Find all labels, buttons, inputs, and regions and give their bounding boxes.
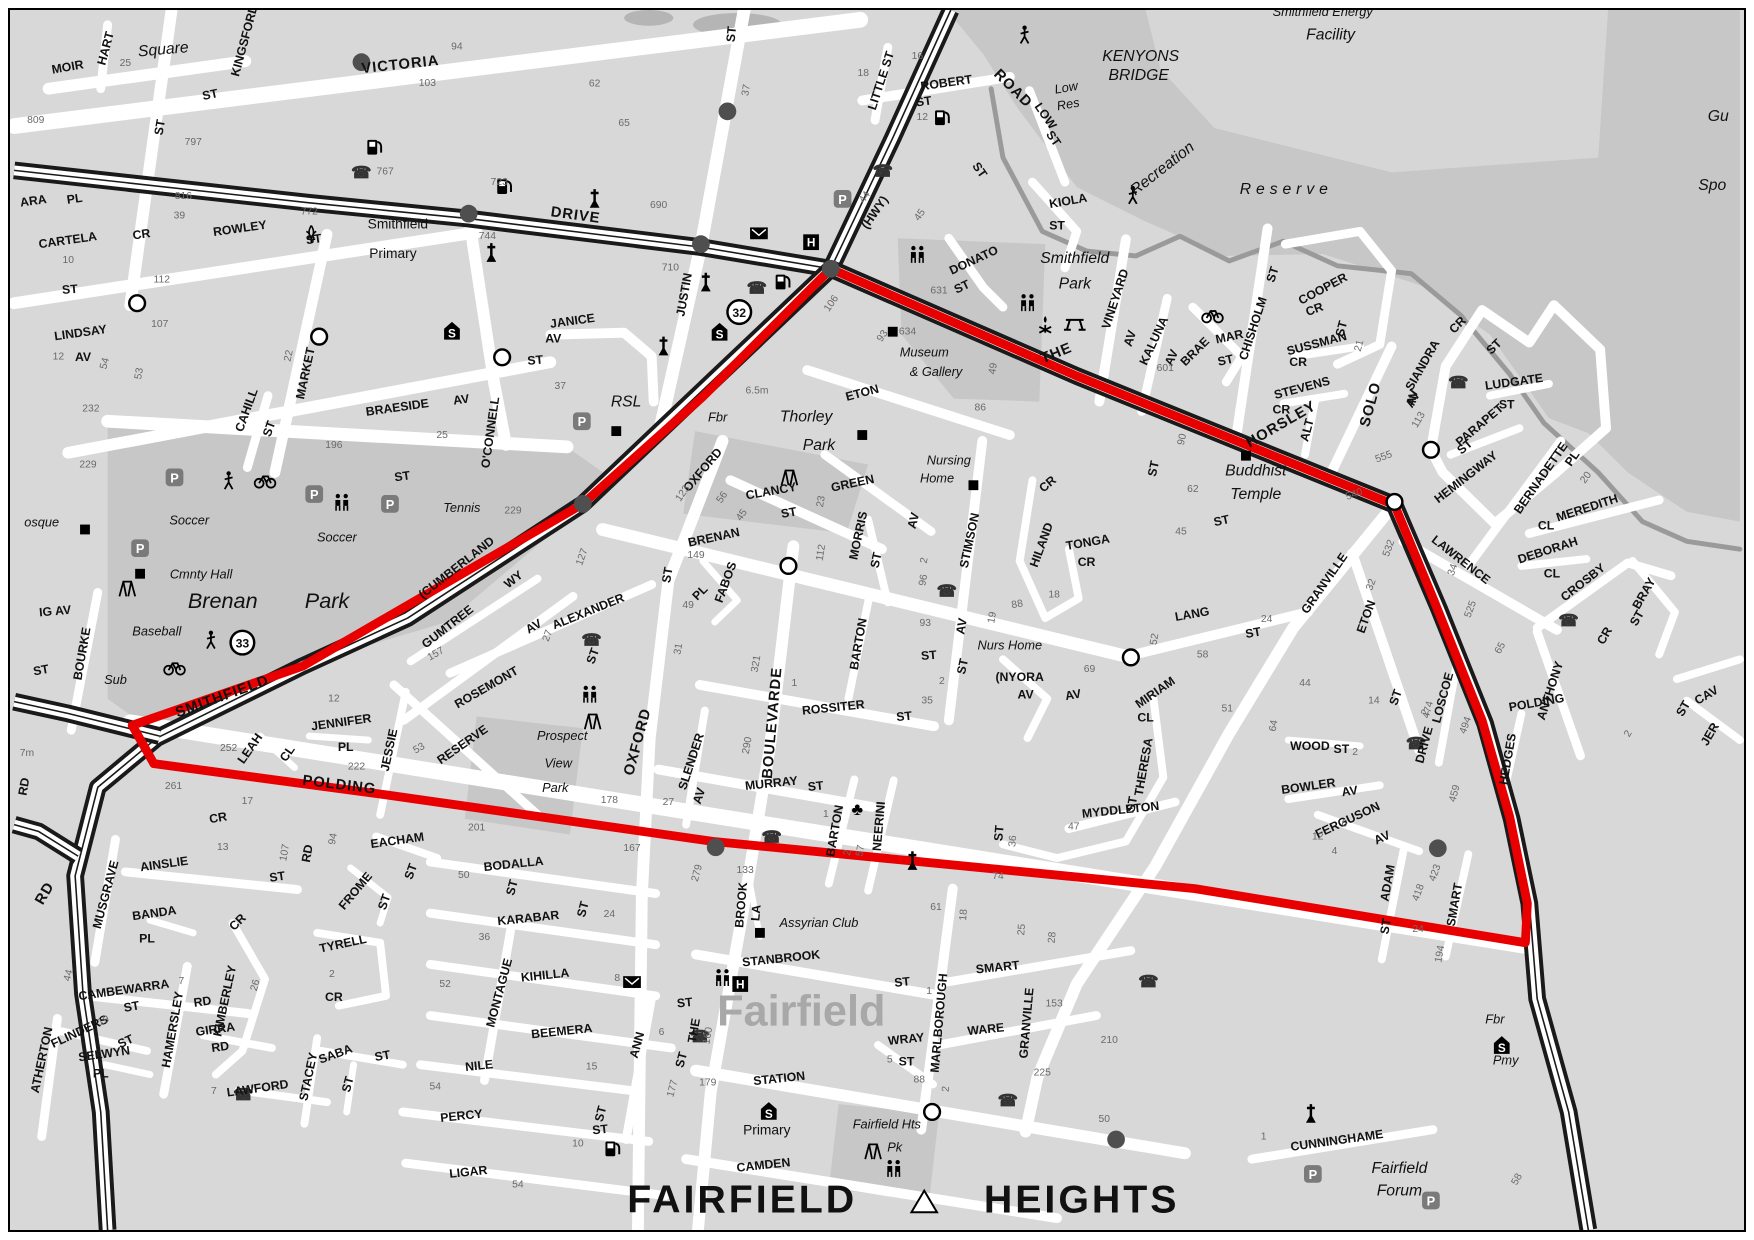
map-label: 53 [133, 367, 146, 380]
map-label: Nursing [927, 453, 971, 468]
map-label: 37 [740, 83, 753, 96]
map-label: CR [1289, 355, 1307, 369]
map-label: 93 [919, 618, 931, 629]
map-label: 49 [987, 362, 1000, 375]
map-label: ST [269, 869, 287, 885]
map-label: (NYORA [995, 670, 1044, 684]
map-label: 23 [815, 495, 828, 508]
map-label: ST [807, 778, 825, 794]
svg-text:P: P [1427, 1193, 1436, 1208]
map-label: ST [32, 662, 50, 679]
svg-text:P: P [310, 487, 319, 502]
map-label: 179 [699, 1077, 716, 1088]
map-label: Baseball [132, 624, 182, 639]
svg-text:P: P [578, 414, 587, 429]
roundabout [311, 329, 327, 345]
map-label: 54 [512, 1180, 524, 1191]
map-label: FAIRFIELD [627, 1177, 857, 1221]
sq-icon [755, 928, 765, 938]
map-label: 2 [329, 969, 335, 980]
hospital-icon: H [803, 234, 819, 250]
map-label: 167 [623, 843, 640, 854]
map-label: CL [1544, 567, 1561, 581]
parking-icon: P [834, 190, 852, 208]
map-label: 24 [1412, 924, 1424, 935]
map-label: ST [991, 824, 1006, 841]
phone-icon: ☎ [581, 631, 602, 650]
map-label: PL [66, 191, 84, 207]
map-label: ST [915, 93, 933, 109]
sq-icon [80, 525, 90, 535]
map-label: 47 [1068, 822, 1080, 833]
map-label: 65 [618, 118, 630, 129]
map-label: ST [305, 231, 323, 247]
map-label: ST [393, 468, 411, 484]
map-label: IG AV [39, 603, 73, 620]
map-label: CL [1137, 710, 1154, 724]
map-label: 229 [504, 506, 521, 517]
map-label: 44 [1299, 678, 1311, 689]
map-label: View [544, 756, 572, 771]
traffic-dot [822, 260, 840, 278]
map-label: 28 [1047, 931, 1059, 944]
map-label: 35 [921, 696, 933, 707]
roundabout [1387, 494, 1403, 510]
map-label: 52 [439, 979, 451, 990]
map-label: 225 [1034, 1068, 1051, 1079]
map-label: ST [527, 353, 544, 368]
map-label: 1 [1261, 1131, 1267, 1142]
map-label: 54 [429, 1081, 441, 1092]
svg-text:S: S [765, 1107, 773, 1121]
roundabout [924, 1104, 940, 1120]
map-label: 15 [586, 1062, 598, 1073]
svg-text:♣: ♣ [852, 799, 864, 819]
map-label: 96 [917, 573, 930, 586]
map-label: 744 [479, 231, 496, 242]
map-label: Spo [1698, 177, 1726, 194]
map-label: 797 [185, 137, 202, 148]
map-label: Park [305, 588, 351, 613]
map-label: Fairfield [1371, 1160, 1428, 1177]
traffic-dot [719, 102, 737, 120]
map-label: ST [1049, 218, 1065, 232]
map-label: Assyrian Club [779, 915, 859, 930]
parking-icon: P [573, 412, 591, 430]
map-label: 50 [458, 870, 470, 881]
map-label: 6 [659, 1027, 665, 1038]
traffic-dot [1429, 839, 1447, 857]
map-label: 69 [1084, 664, 1096, 675]
map-label: WOOD [1290, 739, 1330, 753]
svg-text:P: P [136, 541, 145, 556]
map-label: 133 [737, 865, 754, 876]
map-label: 25 [436, 430, 448, 441]
phone-icon: ☎ [761, 827, 782, 846]
map-label: 107 [151, 319, 168, 330]
map-label: 36 [1007, 835, 1019, 848]
map-label: Park [803, 437, 836, 454]
map-label: 7 [179, 976, 185, 987]
map-label: ST [724, 25, 739, 42]
map-label: 24 [1261, 614, 1273, 625]
map-canvas[interactable]: 3233☎☎☎☎☎☎☎☎☎☎☎☎☎PPPPPPPPHHSSSS♣MOIRSTHA… [10, 10, 1744, 1230]
map-label: 149 [687, 550, 704, 561]
map-label: Fbr [708, 409, 728, 424]
sq-icon [135, 569, 145, 579]
map-label: CR [132, 226, 152, 242]
svg-text:☎: ☎ [747, 278, 768, 297]
map-label: Fairfield [717, 987, 885, 1035]
map-label: Soccer [169, 513, 210, 528]
map-label: 25 [1016, 923, 1028, 936]
map-label: ST [896, 709, 914, 725]
map-label: ST [894, 974, 912, 990]
map-label: 4 [1332, 846, 1338, 857]
map-label: Park [542, 780, 569, 795]
map-label: 12 [328, 694, 340, 705]
clubs-icon: ♣ [852, 799, 864, 819]
map-label: Smithfield Energy [1273, 10, 1375, 19]
map-label: 12 [53, 351, 65, 362]
map-label: 222 [348, 762, 365, 773]
map-label: 8 [614, 973, 620, 984]
map-label: 58 [1197, 649, 1209, 660]
traffic-dot [692, 235, 710, 253]
map-label: 723 [491, 177, 508, 188]
parking-icon: P [1422, 1192, 1440, 1210]
phone-icon: ☎ [351, 163, 372, 182]
map-label: Smithfield [1040, 250, 1110, 267]
map-label: RSL [611, 394, 642, 411]
map-label: ST [61, 282, 78, 297]
map-label: 10 [572, 1138, 584, 1149]
map-label: 12 [1312, 831, 1324, 842]
map-label: 210 [1101, 1035, 1118, 1046]
map-label: Forum [1377, 1183, 1422, 1200]
map-label: LA [748, 904, 763, 922]
map-label: RD [193, 994, 213, 1010]
map-label: 232 [82, 403, 99, 414]
map-label: 13 [217, 842, 229, 853]
map-label: Nurs Home [978, 638, 1043, 653]
map-label: PL [338, 740, 354, 754]
map-label: 10 [63, 255, 75, 266]
map-label: 62 [1187, 484, 1199, 495]
map-label: AV [75, 350, 92, 364]
map-label: ST [123, 998, 141, 1015]
map-label: 14 [1368, 696, 1380, 707]
map-label: 39 [174, 211, 186, 222]
sq-icon [611, 426, 621, 436]
map-label: 51 [1222, 704, 1234, 715]
map-label: HEIGHTS [984, 1177, 1180, 1221]
roundabout [129, 295, 145, 311]
map-label: 601 [1157, 363, 1174, 374]
map-label: Buddhist [1225, 462, 1287, 479]
map-label: 88 [914, 1074, 926, 1085]
pond [624, 10, 673, 26]
map-label: 7 [211, 1086, 217, 1097]
svg-text:☎: ☎ [1558, 611, 1579, 630]
map-label: BRIDGE [1109, 67, 1170, 84]
map-label: Facility [1306, 27, 1356, 44]
map-label: & Gallery [910, 364, 964, 379]
map-label: osque [24, 515, 59, 530]
map-label: 94 [451, 41, 463, 52]
map-label: ST [592, 1122, 610, 1138]
phone-icon: ☎ [747, 278, 768, 297]
map-label: Park [1059, 275, 1092, 292]
roundabout [494, 349, 510, 365]
map-label: Thorley [780, 408, 834, 425]
route-shield-label: 33 [236, 637, 250, 651]
svg-text:☎: ☎ [936, 581, 957, 600]
map-label: 1 [926, 986, 932, 997]
map-label: 6 [1341, 819, 1347, 830]
map-label: 153 [1045, 999, 1062, 1010]
phone-icon: ☎ [936, 581, 957, 600]
svg-text:S: S [448, 327, 456, 341]
svg-text:☎: ☎ [872, 161, 893, 180]
street-directory-page: 3233☎☎☎☎☎☎☎☎☎☎☎☎☎PPPPPPPPHHSSSS♣MOIRSTHA… [0, 0, 1754, 1240]
map-label: 178 [601, 795, 618, 806]
map-label: 767 [376, 166, 393, 177]
map-label: 16 [912, 51, 924, 62]
map-label: 31 [672, 642, 685, 655]
map-label: Reserve [1240, 181, 1333, 198]
map-label: Soccer [317, 529, 358, 544]
map-label: ST [1334, 742, 1350, 756]
map-label: 18 [857, 68, 869, 79]
sq-icon [857, 430, 867, 440]
map-label: Cmnty Hall [170, 567, 234, 582]
map-label: Pmy [1493, 1053, 1520, 1068]
svg-text:H: H [807, 236, 816, 250]
map-label: 1 [791, 678, 797, 689]
map-label: Temple [1230, 486, 1281, 503]
phone-icon: ☎ [1558, 611, 1579, 630]
map-label: ST [899, 1055, 915, 1069]
map-label: 5 [887, 1055, 893, 1066]
map-label: PL [93, 1067, 109, 1081]
route-shield-label: 32 [732, 306, 746, 320]
map-label: Primary [369, 246, 417, 261]
map-label: Museum [900, 344, 949, 359]
map-label: Primary [743, 1123, 791, 1138]
map-label: 12 [917, 112, 929, 123]
map-label: RD [210, 1039, 230, 1055]
map-label: 809 [27, 115, 44, 126]
map-label: 25 [120, 58, 132, 69]
phone-icon: ☎ [872, 161, 893, 180]
map-label: 2 [1352, 747, 1358, 758]
parking-icon: P [381, 495, 399, 513]
parking-icon: P [131, 539, 149, 557]
map-label: 45 [1175, 526, 1187, 537]
map-label: 37 [554, 381, 566, 392]
map-label: AV [1341, 783, 1360, 799]
map-label: Prospect [537, 728, 588, 743]
map-label: 2 [939, 676, 945, 687]
parking-icon: P [1304, 1165, 1322, 1183]
map-label: 7m [20, 748, 34, 759]
map-label: Smithfield [368, 216, 428, 231]
parking-icon: P [166, 468, 184, 486]
map-label: Pk [887, 1139, 903, 1154]
map-label: ST [920, 648, 937, 663]
map-label: 88 [1011, 598, 1024, 611]
map-label: 52 [1149, 632, 1162, 645]
map-label: Fairfield Hts [853, 1117, 922, 1132]
svg-text:☎: ☎ [997, 1091, 1018, 1110]
map-label: 62 [589, 79, 601, 90]
map-label: NILE [464, 1057, 493, 1074]
map-label: CR [1078, 555, 1096, 569]
map-label: AV [545, 332, 562, 346]
traffic-dot [574, 495, 592, 513]
map-label: AV [1064, 686, 1083, 703]
svg-text:S: S [716, 328, 724, 342]
map-label: 196 [325, 440, 342, 451]
svg-text:P: P [1309, 1167, 1318, 1182]
svg-text:☎: ☎ [581, 631, 602, 650]
roundabout [1423, 442, 1439, 458]
map-label: Home [920, 470, 954, 485]
map-label: 772 [301, 207, 318, 218]
map-label: 103 [419, 78, 436, 89]
map-label: 631 [930, 285, 947, 296]
map-label: Gu [1708, 108, 1729, 125]
map-label: 816 [175, 191, 192, 202]
map-label: ST [659, 566, 676, 584]
map-label: 201 [468, 823, 485, 834]
map-label: 1 [823, 809, 829, 820]
svg-text:☎: ☎ [1448, 373, 1469, 392]
map-label: Fbr [1485, 1011, 1505, 1026]
map-label: AV [452, 391, 471, 407]
map-label: 6.5m [745, 386, 768, 397]
map-label: 64 [1268, 719, 1281, 732]
map-label: 112 [153, 275, 170, 286]
traffic-dot [460, 205, 478, 223]
map-label: 50 [1099, 1114, 1111, 1125]
map-label: ST [676, 995, 694, 1011]
map-label: 710 [662, 263, 679, 274]
svg-text:☎: ☎ [1138, 972, 1159, 991]
map-label: 634 [899, 327, 916, 338]
svg-text:P: P [170, 470, 179, 485]
map-label: 36 [479, 932, 491, 943]
parking-icon: P [305, 485, 323, 503]
map-label: 17 [242, 796, 254, 807]
map-label: Brenan [188, 588, 258, 613]
map-label: 49 [682, 600, 694, 611]
map-label: 94 [327, 832, 340, 845]
svg-text:P: P [838, 192, 847, 207]
svg-text:P: P [386, 497, 395, 512]
sq-icon [969, 480, 979, 490]
phone-icon: ☎ [1138, 972, 1159, 991]
map-label: KENYONS [1102, 48, 1179, 65]
traffic-dot [707, 838, 725, 856]
phone-icon: ☎ [997, 1091, 1018, 1110]
svg-text:☎: ☎ [761, 827, 782, 846]
map-label: 19 [986, 611, 999, 624]
svg-text:☎: ☎ [351, 163, 372, 182]
map-frame: 3233☎☎☎☎☎☎☎☎☎☎☎☎☎PPPPPPPPHHSSSS♣MOIRSTHA… [8, 8, 1746, 1232]
map-label: 57 [854, 844, 867, 857]
phone-icon: ☎ [1448, 373, 1469, 392]
map-label: ST [780, 504, 798, 521]
sq-icon [1241, 451, 1251, 461]
map-label: CR [325, 990, 343, 1004]
roundabout [781, 558, 797, 574]
map-label: 74 [992, 871, 1004, 882]
map-label: 252 [220, 743, 237, 754]
map-label: ST [373, 1048, 391, 1065]
map-label: Tennis [443, 500, 481, 515]
post-icon [623, 976, 641, 988]
map-label: 690 [650, 200, 667, 211]
map-label: 18 [1048, 589, 1060, 600]
post-icon [750, 227, 768, 239]
roundabout [1123, 650, 1139, 666]
map-label: 27 [663, 797, 675, 808]
traffic-dot [1107, 1131, 1125, 1149]
map-label: 18 [958, 908, 970, 921]
map-label: AV [1017, 688, 1034, 702]
map-label: ST [1244, 624, 1262, 641]
map-label: 261 [165, 781, 182, 792]
map-label: PL [139, 932, 155, 946]
map-label: 86 [975, 402, 987, 413]
map-label: AV [953, 616, 970, 635]
map-label: 24 [604, 909, 616, 920]
map-label: Sub [104, 672, 127, 687]
map-label: CL [1538, 518, 1555, 532]
map-label: 61 [930, 902, 942, 913]
map-label: ST [1377, 917, 1394, 935]
map-label: ST [151, 118, 168, 136]
map-label: 229 [79, 460, 96, 471]
